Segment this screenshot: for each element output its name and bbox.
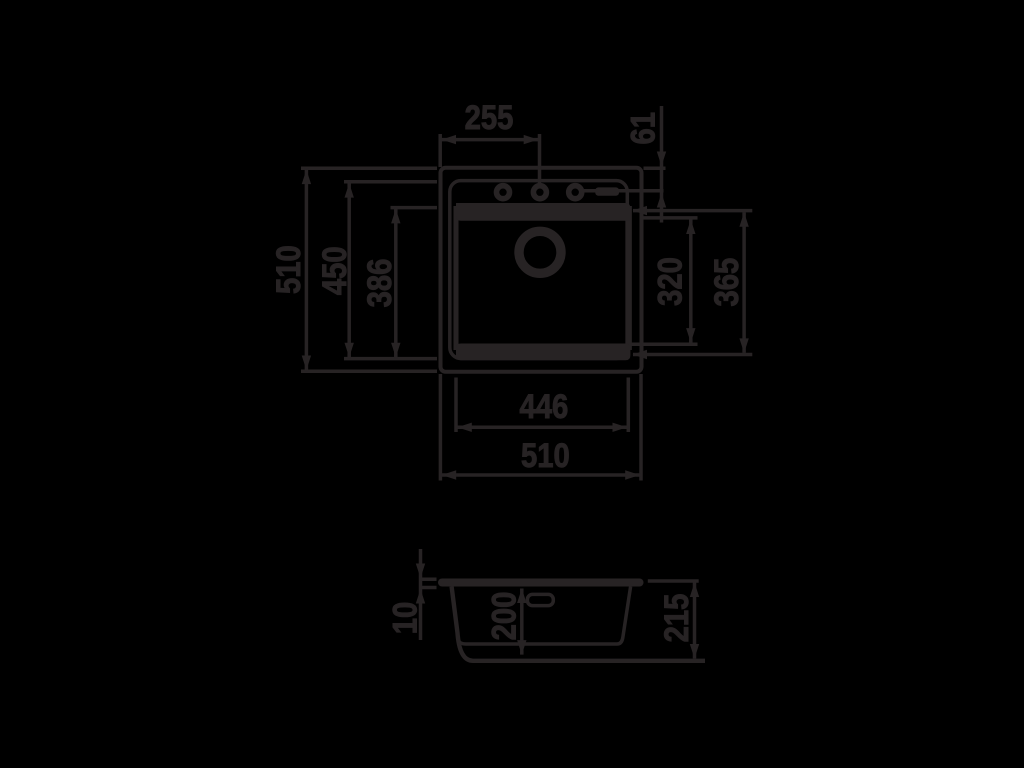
svg-text:510: 510 bbox=[521, 436, 570, 475]
svg-text:320: 320 bbox=[650, 257, 689, 306]
svg-text:215: 215 bbox=[657, 594, 696, 643]
svg-text:255: 255 bbox=[465, 98, 514, 137]
svg-text:386: 386 bbox=[360, 259, 399, 308]
svg-text:510: 510 bbox=[269, 245, 308, 294]
svg-text:446: 446 bbox=[520, 387, 569, 426]
svg-text:200: 200 bbox=[484, 592, 523, 641]
svg-text:10: 10 bbox=[386, 602, 425, 635]
svg-text:450: 450 bbox=[315, 246, 354, 295]
svg-text:365: 365 bbox=[707, 258, 746, 307]
svg-text:61: 61 bbox=[623, 112, 662, 145]
